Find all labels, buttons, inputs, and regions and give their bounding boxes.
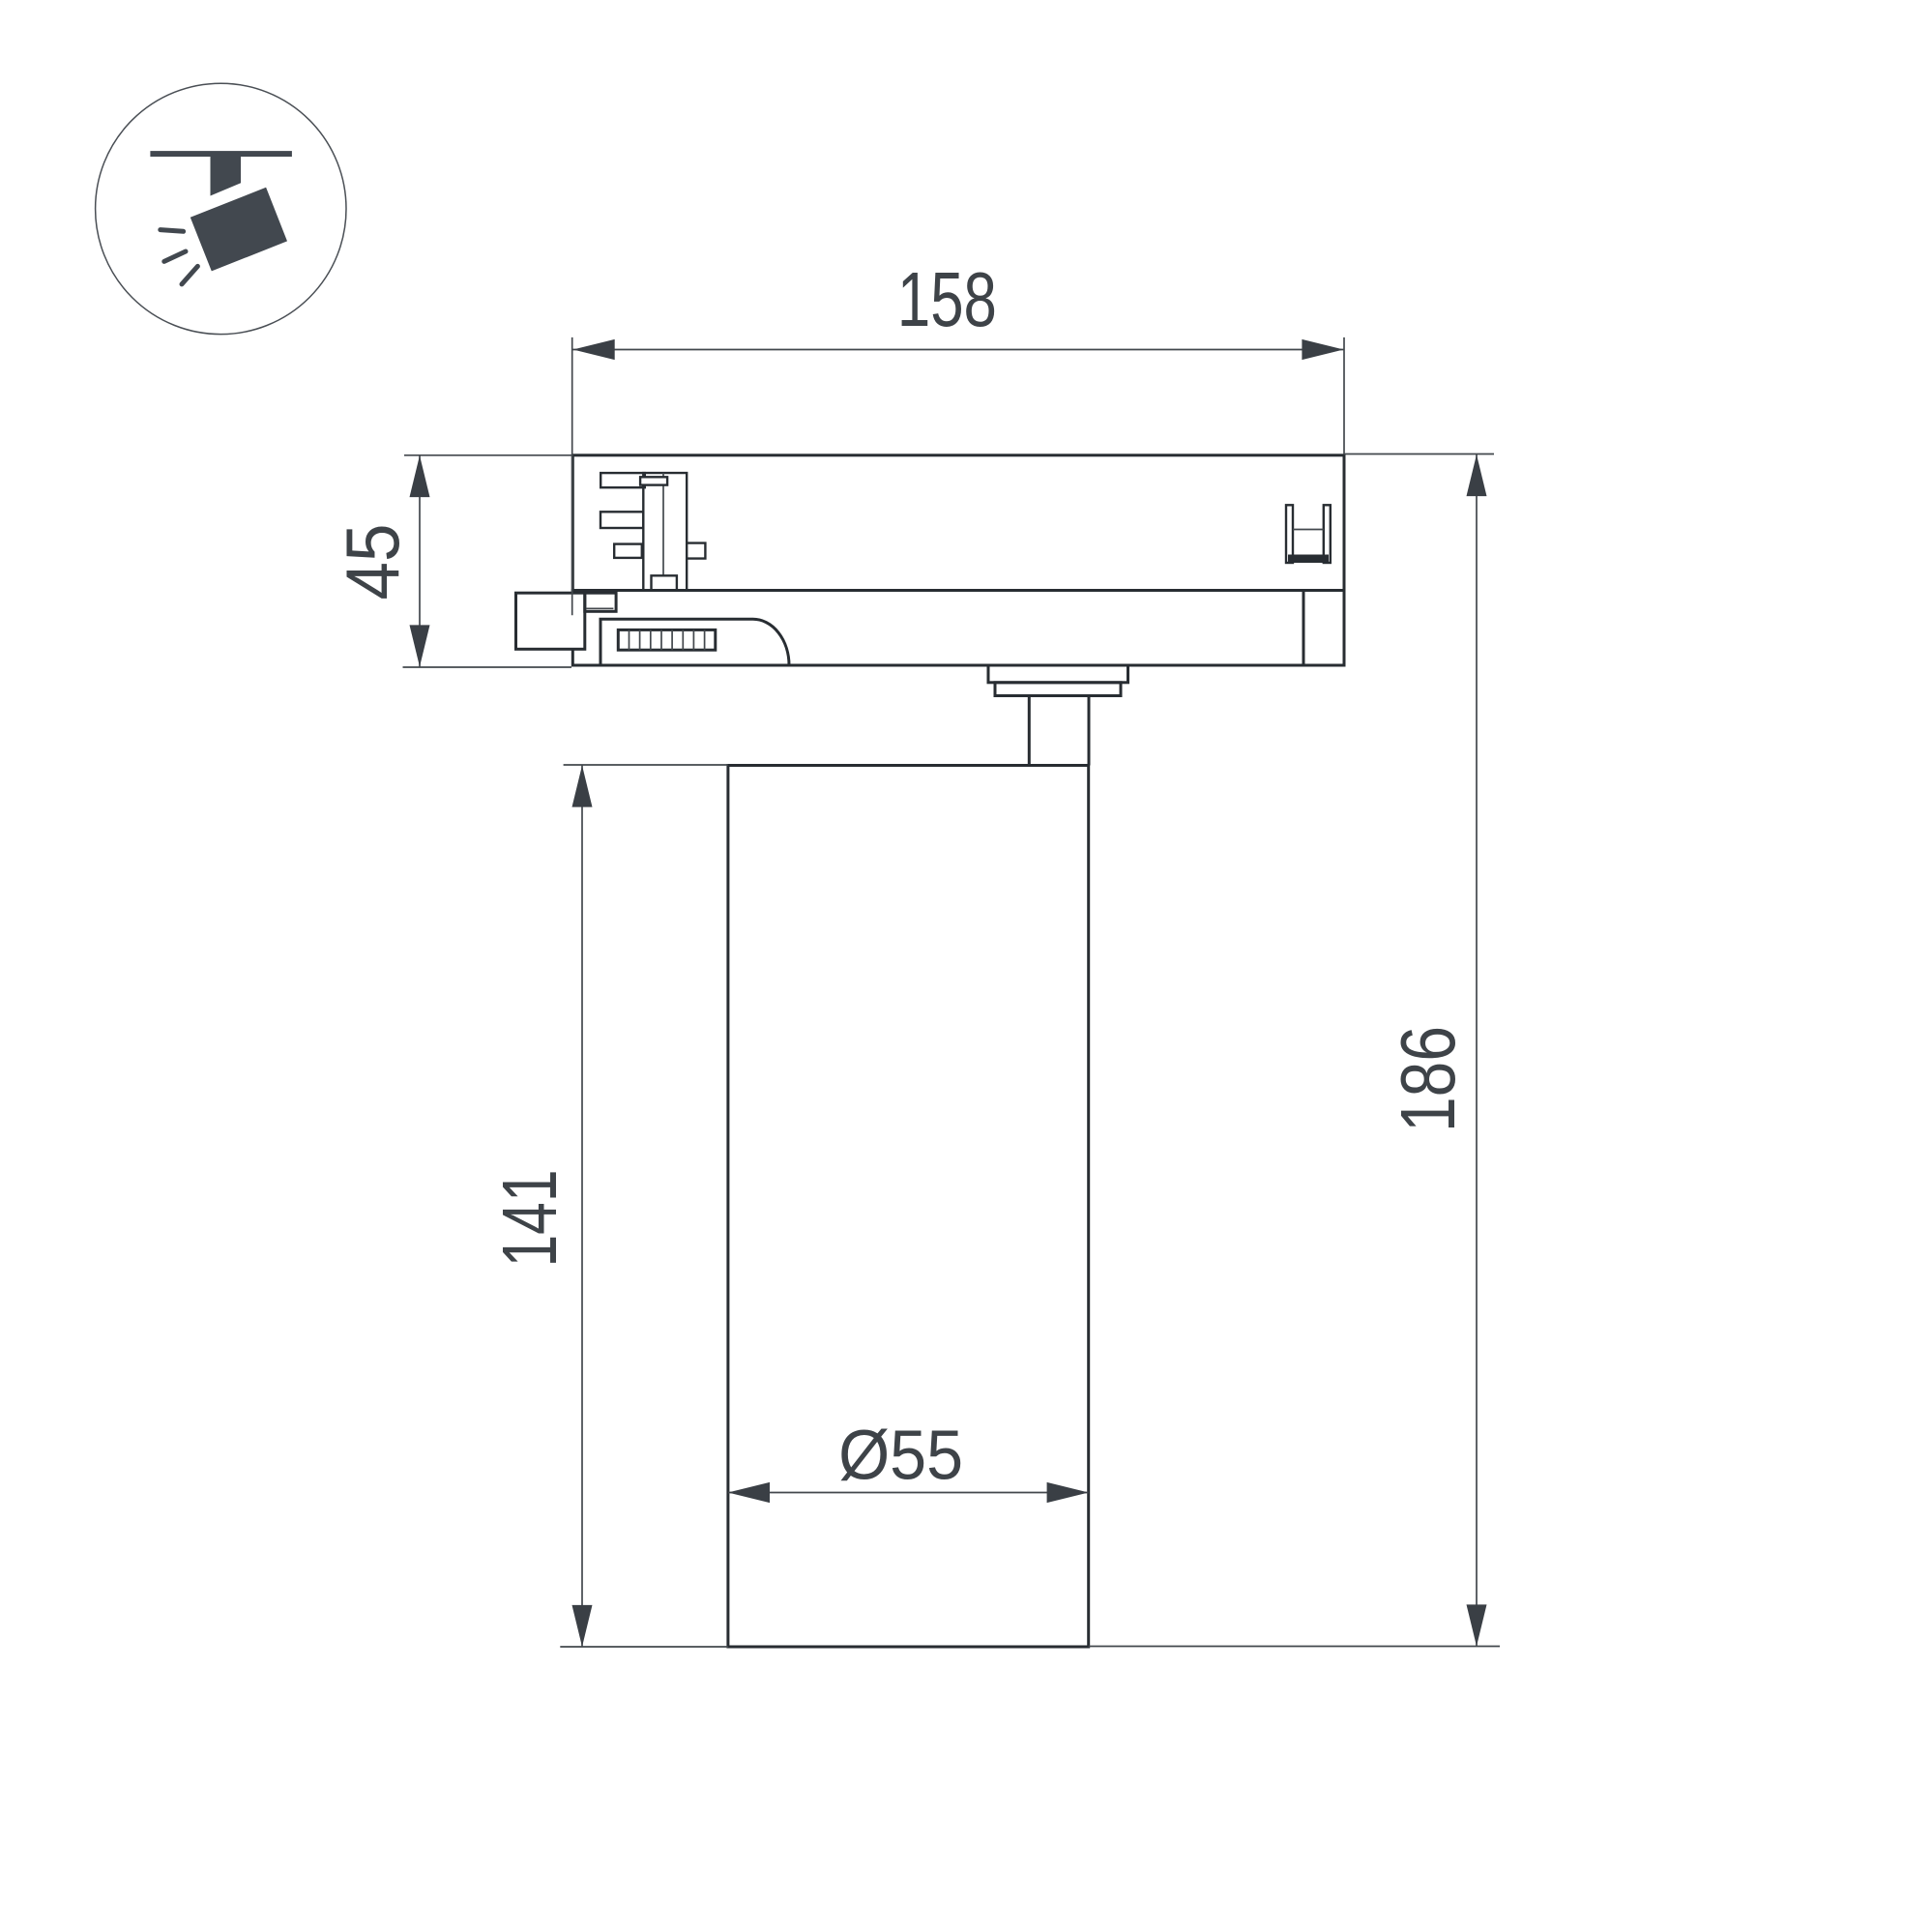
svg-text:158: 158 xyxy=(897,256,997,342)
svg-text:Ø55: Ø55 xyxy=(838,1418,963,1495)
svg-text:141: 141 xyxy=(486,1170,572,1268)
svg-text:186: 186 xyxy=(1385,1026,1471,1132)
svg-text:45: 45 xyxy=(330,524,415,600)
